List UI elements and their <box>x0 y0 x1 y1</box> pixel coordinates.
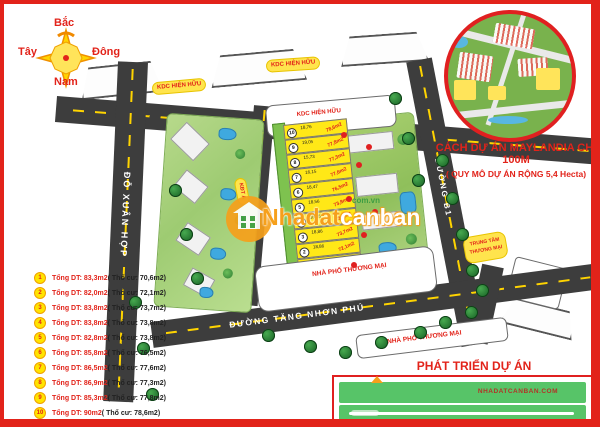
inset-houses <box>456 52 493 82</box>
legend-number-badge: 2 <box>34 287 46 299</box>
development-bar1-text: NHADATCANBAN.COM <box>478 388 558 395</box>
site-plan-poster: ĐỖ XUÂN HỢP ĐƯỜNG B1 ĐƯỜNG TĂNG NHƠN PHÚ… <box>0 0 600 427</box>
bush <box>235 149 246 160</box>
inset-caption-line1: CÁCH DỰ ÁN MAYLANDIA CHỈ 100M <box>428 142 600 166</box>
legend-residential-area: ( Thổ cư: 70,6m2) <box>108 275 166 282</box>
plot-number: 8 <box>290 157 301 168</box>
tree-icon <box>339 346 352 359</box>
legend-text: Tổng DT: 90m2( Thổ cư: 78,6m2) <box>52 410 160 417</box>
legend-total-area: Tổng DT: 83,8m2 <box>52 320 108 327</box>
plot-number: 6 <box>293 187 304 198</box>
legend-total-area: Tổng DT: 86,5m2 <box>52 365 108 372</box>
legend-text: Tổng DT: 86,5m2( Thổ cư: 77,6m2) <box>52 365 166 372</box>
legend-item-5: 5Tổng DT: 82,8m2( Thổ cư: 73,8m2) <box>34 332 166 344</box>
compass-east: Đông <box>92 46 120 58</box>
tree-icon <box>412 174 425 187</box>
legend-text: Tổng DT: 82,8m2( Thổ cư: 73,8m2) <box>52 335 166 342</box>
plot-dimension: 19,05 <box>302 139 314 145</box>
legend-residential-area: ( Thổ cư: 73,7m2) <box>108 305 166 312</box>
plot-number: 10 <box>286 128 297 139</box>
censored-line <box>349 412 574 415</box>
inset-pond <box>450 36 468 48</box>
legend-number-badge: 7 <box>34 362 46 374</box>
legend-number-badge: 5 <box>34 332 46 344</box>
plot-area: 76,5m2 <box>331 181 349 193</box>
nha-pho-label-upper: NHÀ PHỐ THƯƠNG MẠI <box>312 262 387 278</box>
legend-item-1: 1Tổng DT: 83,3m2( Thổ cư: 70,6m2) <box>34 272 166 284</box>
legend-item-4: 4Tổng DT: 83,8m2( Thổ cư: 73,8m2) <box>34 317 166 329</box>
tree-icon <box>191 272 204 285</box>
inset-lots <box>536 68 560 90</box>
tree-icon <box>466 264 479 277</box>
red-tree-marker <box>366 144 372 150</box>
plot-dimension: 16,15 <box>305 169 317 175</box>
legend-item-7: 7Tổng DT: 86,5m2( Thổ cư: 77,6m2) <box>34 362 166 374</box>
tree-icon <box>446 192 459 205</box>
building <box>175 222 211 256</box>
plot-area: 72,1m2 <box>338 241 356 253</box>
development-bar-2 <box>339 405 586 422</box>
tree-icon <box>389 92 402 105</box>
legend-item-8: 8Tổng DT: 86,9m2( Thổ cư: 77,3m2) <box>34 377 166 389</box>
pool <box>218 127 237 140</box>
legend-total-area: Tổng DT: 83,8m2 <box>52 305 108 312</box>
legend-residential-area: ( Thổ cư: 77,3m2) <box>108 380 166 387</box>
legend-total-area: Tổng DT: 82,8m2 <box>52 335 108 342</box>
plot-area: 77,6m2 <box>330 166 348 178</box>
plot-dimension: 15,73 <box>303 154 315 160</box>
legend-text: Tổng DT: 82,0m2( Thổ cư: 72,1m2) <box>52 290 166 297</box>
watermark-window <box>250 223 255 228</box>
legend-residential-area: ( Thổ cư: 72,1m2) <box>108 290 166 297</box>
inset-map <box>444 10 576 142</box>
tree-icon <box>304 340 317 353</box>
plot-dimension: 18,47 <box>306 184 318 190</box>
compass-south: Nam <box>54 76 78 88</box>
legend-total-area: Tổng DT: 90m2 <box>52 410 102 417</box>
legend-number-badge: 3 <box>34 302 46 314</box>
legend-total-area: Tổng DT: 82,0m2 <box>52 290 108 297</box>
watermark-brand-part1: Nhadat <box>262 204 340 230</box>
legend-item-9: 9Tổng DT: 85,3m2( Thổ cư: 77,8m2) <box>34 392 166 404</box>
plot-area: 77,8m2 <box>327 136 345 148</box>
bush <box>405 233 417 245</box>
legend-item-3: 3Tổng DT: 83,8m2( Thổ cư: 73,7m2) <box>34 302 166 314</box>
legend-text: Tổng DT: 85,8m2( Thổ cư: 76,5m2) <box>52 350 166 357</box>
building <box>347 131 395 154</box>
legend-number-badge: 4 <box>34 317 46 329</box>
watermark-house-roof-icon <box>233 202 265 213</box>
red-tree-marker <box>351 262 357 268</box>
legend-total-area: Tổng DT: 85,8m2 <box>52 350 108 357</box>
legend-number-badge: 1 <box>34 272 46 284</box>
legend-item-6: 6Tổng DT: 85,8m2( Thổ cư: 76,5m2) <box>34 347 166 359</box>
tree-icon <box>262 329 275 342</box>
legend-number-badge: 6 <box>34 347 46 359</box>
watermark-brand: Nhadatcanban <box>262 204 420 231</box>
inset-lots <box>488 86 506 100</box>
legend-residential-area: ( Thổ cư: 76,5m2) <box>108 350 166 357</box>
development-title: PHÁT TRIỂN DỰ ÁN <box>374 359 574 373</box>
pool <box>220 188 237 201</box>
legend-residential-area: ( Thổ cư: 78,6m2) <box>102 410 160 417</box>
development-box: NHADATCANBAN.COM <box>332 375 597 427</box>
building <box>355 173 399 197</box>
compass-north: Bắc <box>54 17 74 29</box>
pool <box>199 287 214 299</box>
kdc-pill-2: KDC HIỆN HỮU <box>266 56 321 73</box>
plot-dimension: 18,76 <box>300 124 312 130</box>
legend-text: Tổng DT: 83,8m2( Thổ cư: 73,7m2) <box>52 305 166 312</box>
development-bar-1: NHADATCANBAN.COM <box>339 382 586 403</box>
legend-total-area: Tổng DT: 85,3m2 <box>52 395 108 402</box>
watermark-brand-part2: canban <box>340 204 421 230</box>
tree-icon <box>456 228 469 241</box>
tree-icon <box>180 228 193 241</box>
plot-number: 7 <box>291 172 302 183</box>
legend-total-area: Tổng DT: 83,3m2 <box>52 275 108 282</box>
plot-area: 78,6m2 <box>325 121 343 133</box>
legend-residential-area: ( Thổ cư: 77,8m2) <box>108 395 166 402</box>
legend-text: Tổng DT: 86,9m2( Thổ cư: 77,3m2) <box>52 380 166 387</box>
legend-text: Tổng DT: 85,3m2( Thổ cư: 77,8m2) <box>52 395 166 402</box>
legend-residential-area: ( Thổ cư: 73,8m2) <box>108 335 166 342</box>
tree-icon <box>402 132 415 145</box>
pool <box>210 247 227 260</box>
inset-caption-line2: ( QUY MÔ DỰ ÁN RỘNG 5,4 Hecta) <box>428 169 600 179</box>
legend-residential-area: ( Thổ cư: 77,6m2) <box>108 365 166 372</box>
legend-text: Tổng DT: 83,3m2( Thổ cư: 70,6m2) <box>52 275 166 282</box>
inset-pond <box>488 116 528 124</box>
tree-icon <box>414 326 427 339</box>
watermark-window <box>250 216 255 221</box>
watermark-window <box>241 216 246 221</box>
legend-number-badge: 9 <box>34 392 46 404</box>
bush <box>222 268 233 279</box>
tree-icon <box>375 336 388 349</box>
kdc-pill-1: KDC HIỆN HỮU <box>152 78 207 96</box>
legend-residential-area: ( Thổ cư: 73,8m2) <box>108 320 166 327</box>
building <box>170 122 210 161</box>
tree-icon <box>476 284 489 297</box>
red-tree-marker <box>341 132 347 138</box>
legend-number-badge: 8 <box>34 377 46 389</box>
legend-item-2: 2Tổng DT: 82,0m2( Thổ cư: 72,1m2) <box>34 287 166 299</box>
inset-lots <box>454 80 476 100</box>
red-tree-marker <box>356 162 362 168</box>
tree-icon <box>169 184 182 197</box>
legend-number-badge: 10 <box>34 407 46 419</box>
inset-caption: CÁCH DỰ ÁN MAYLANDIA CHỈ 100M ( QUY MÔ D… <box>428 142 600 179</box>
tree-icon <box>465 306 478 319</box>
red-tree-marker <box>361 232 367 238</box>
plot-area: 77,3m2 <box>328 151 346 163</box>
legend-item-10: 10Tổng DT: 90m2( Thổ cư: 78,6m2) <box>34 407 160 419</box>
plot-number: 9 <box>288 143 299 154</box>
logo-triangle-icon <box>371 376 383 383</box>
watermark-domain: com.vn <box>352 196 380 205</box>
road-label-do-xuan-hop: ĐỖ XUÂN HỢP <box>118 172 132 259</box>
trung-tam-label: TRUNG TÂM THƯƠNG MẠI <box>462 230 509 264</box>
legend-total-area: Tổng DT: 86,9m2 <box>52 380 108 387</box>
watermark-window <box>241 223 246 228</box>
compass-west: Tây <box>18 46 37 58</box>
watermark-house-icon <box>238 213 260 229</box>
legend-text: Tổng DT: 83,8m2( Thổ cư: 73,8m2) <box>52 320 166 327</box>
plot-number: 3 <box>297 232 308 243</box>
kdc-label-3: KDC HIỆN HỮU <box>297 108 342 118</box>
tree-icon <box>439 316 452 329</box>
plot-dimension: 18,86 <box>313 243 325 249</box>
plot-number: 2 <box>299 247 310 258</box>
